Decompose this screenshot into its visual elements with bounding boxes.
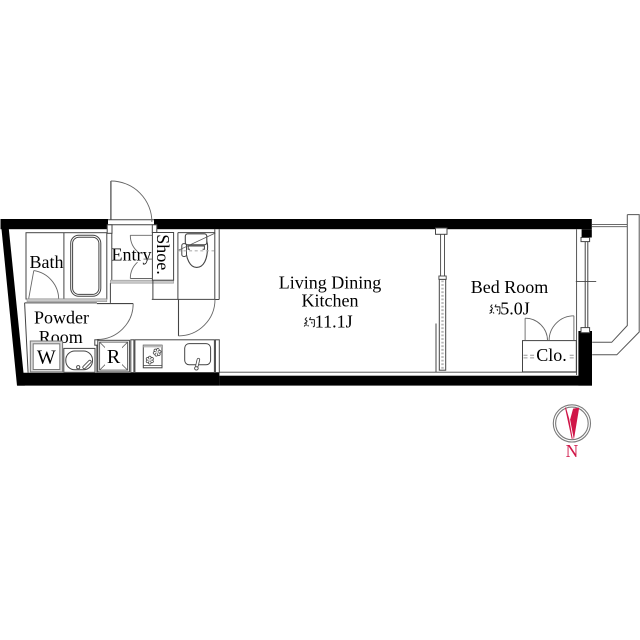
svg-text:Entry: Entry bbox=[112, 245, 152, 265]
svg-text:W: W bbox=[37, 347, 56, 369]
svg-text:Bed Room: Bed Room bbox=[471, 277, 549, 297]
svg-text:N: N bbox=[566, 441, 579, 461]
svg-text:R: R bbox=[107, 346, 121, 368]
svg-text:Bath: Bath bbox=[30, 252, 64, 272]
svg-text:Shoe.: Shoe. bbox=[153, 234, 173, 275]
svg-text:5.0J: 5.0J bbox=[500, 299, 530, 319]
svg-text:Powder: Powder bbox=[34, 308, 89, 328]
svg-text:11.1J: 11.1J bbox=[315, 311, 353, 331]
svg-text:Kitchen: Kitchen bbox=[302, 290, 359, 310]
svg-text:Clo.: Clo. bbox=[536, 345, 567, 365]
